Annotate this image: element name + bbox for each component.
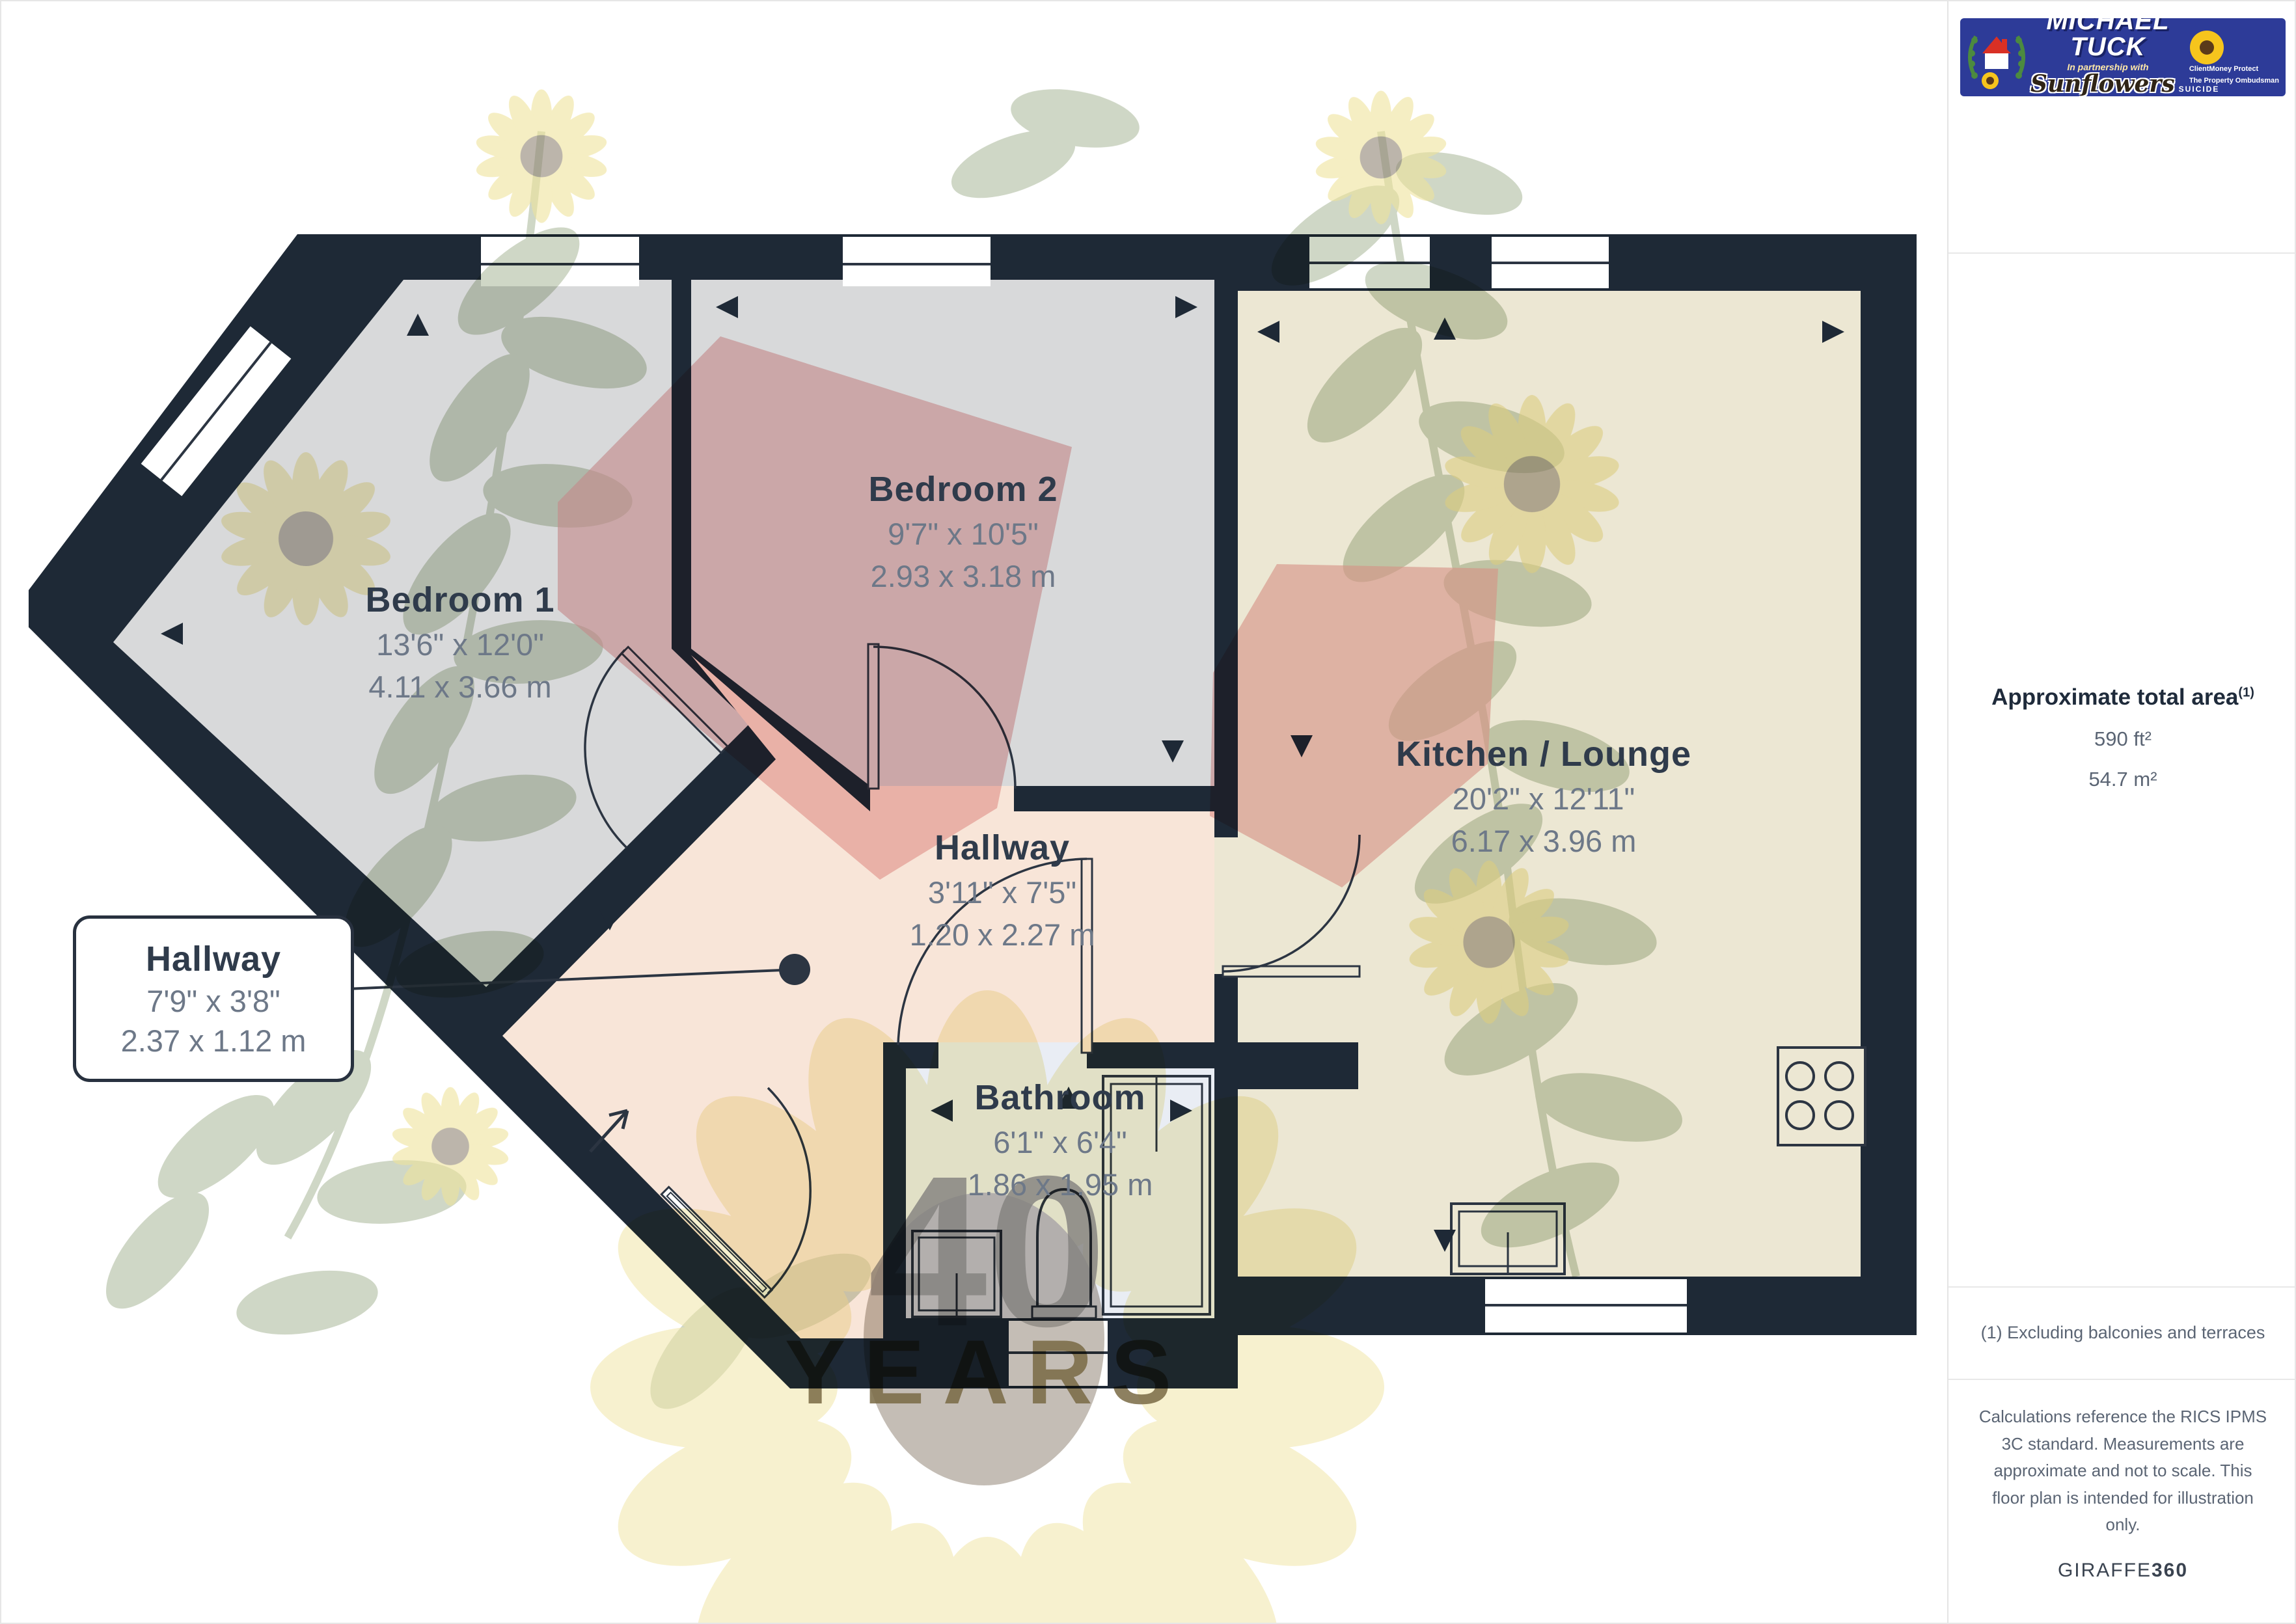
- kitchen-door-opening: [1214, 837, 1238, 974]
- room-dim-imperial: 13'6" x 12'0": [365, 627, 554, 662]
- room-dim-metric: 1.86 x 1.95 m: [968, 1167, 1153, 1202]
- room-name: Bedroom 2: [868, 469, 1058, 509]
- hob-icon: [1778, 1048, 1865, 1145]
- callout-dim-imperial: 7'9" x 3'8": [146, 983, 280, 1019]
- floorplan-page: Bedroom 1 13'6" x 12'0" 4.11 x 3.66 m Be…: [0, 0, 2296, 1624]
- toilet-icon: [1032, 1189, 1096, 1318]
- kitchen-wall-stub: [1238, 1042, 1358, 1089]
- info-sidebar: MICHAEL TUCK In partnership with Sunflow…: [1947, 1, 2296, 1624]
- total-area-title: Approximate total area(1): [1948, 684, 2296, 710]
- total-area-metric: 54.7 m²: [1948, 768, 2296, 791]
- room-dim-imperial: 9'7" x 10'5": [868, 516, 1058, 552]
- room-name: Kitchen / Lounge: [1396, 734, 1691, 774]
- room-dim-imperial: 20'2" x 12'11": [1396, 781, 1691, 817]
- sidebar-divider: [1948, 252, 2296, 254]
- room-name: Bathroom: [968, 1077, 1153, 1118]
- basin-icon: [912, 1231, 1001, 1317]
- room-label-bedroom-1: Bedroom 1 13'6" x 12'0" 4.11 x 3.66 m: [365, 580, 554, 705]
- room-dim-imperial: 6'1" x 6'4": [968, 1124, 1153, 1160]
- room-dim-metric: 4.11 x 3.66 m: [365, 669, 554, 705]
- total-area-imperial: 590 ft²: [1948, 727, 2296, 751]
- logo-house-laurel-icon: [1967, 23, 2027, 91]
- room-name: Hallway: [910, 828, 1095, 868]
- total-area-footnote-marker: (1): [2238, 685, 2254, 699]
- room-dim-metric: 6.17 x 3.96 m: [1396, 823, 1691, 859]
- logo-brand-text: MICHAEL TUCK: [2030, 18, 2185, 60]
- disclaimer-text: Calculations reference the RICS IPMS 3C …: [1948, 1403, 2296, 1539]
- room-label-bathroom: Bathroom 6'1" x 6'4" 1.86 x 1.95 m: [968, 1077, 1153, 1202]
- logo-badge-clientmoney: ClientMoney Protect: [2189, 65, 2279, 73]
- logo-badge-ombudsman: The Property Ombudsman: [2189, 77, 2279, 85]
- sink-icon: [1451, 1204, 1565, 1274]
- room-dim-imperial: 3'11" x 7'5": [910, 874, 1095, 910]
- callout-dim-metric: 2.37 x 1.12 m: [121, 1023, 307, 1059]
- total-area-block: Approximate total area(1) 590 ft² 54.7 m…: [1948, 684, 2296, 791]
- callout-name: Hallway: [146, 939, 281, 979]
- bathroom-door-opening: [938, 1042, 1087, 1069]
- room-label-bedroom-2: Bedroom 2 9'7" x 10'5" 2.93 x 3.18 m: [868, 469, 1058, 594]
- hallway-callout: Hallway 7'9" x 3'8" 2.37 x 1.12 m: [73, 915, 354, 1082]
- logo-sunflower-icon: [2189, 30, 2224, 65]
- logo-script-text: Sunflowers: [2030, 70, 2175, 97]
- room-dim-metric: 2.93 x 3.18 m: [868, 558, 1058, 594]
- footnote-text: (1) Excluding balconies and terraces: [1948, 1286, 2296, 1379]
- bedroom-2-door-opening: [870, 786, 1014, 812]
- agency-logo: MICHAEL TUCK In partnership with Sunflow…: [1960, 18, 2286, 96]
- sidebar-divider: [1948, 1379, 2296, 1380]
- room-dim-metric: 1.20 x 2.27 m: [910, 917, 1095, 953]
- room-label-kitchen-lounge: Kitchen / Lounge 20'2" x 12'11" 6.17 x 3…: [1396, 734, 1691, 859]
- room-label-hallway: Hallway 3'11" x 7'5" 1.20 x 2.27 m: [910, 828, 1095, 953]
- room-name: Bedroom 1: [365, 580, 554, 620]
- giraffe360-brand: GIRAFFE360: [1948, 1560, 2296, 1582]
